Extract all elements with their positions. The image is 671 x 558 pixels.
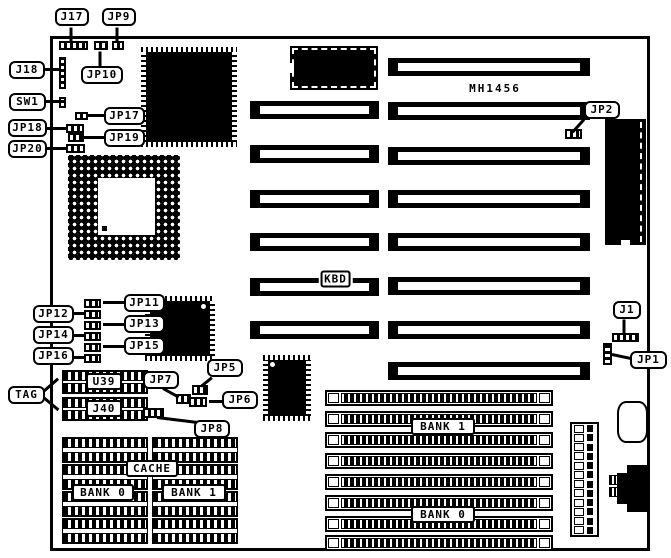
- isa-slot-long: [388, 58, 590, 76]
- callout-jp12: JP12: [33, 305, 74, 323]
- simm-slot: [325, 453, 553, 469]
- lead-j18: [45, 68, 59, 71]
- callout-jp6: JP6: [222, 391, 258, 409]
- callout-jp15: JP15: [124, 337, 165, 355]
- header-j18: [59, 57, 66, 89]
- lead-jp17: [87, 114, 104, 117]
- power-pin-socket: [574, 526, 584, 534]
- cpu-pga-cavity: [98, 178, 155, 235]
- header-j1: [612, 333, 639, 342]
- cache-bank0-label: BANK 0: [72, 484, 134, 501]
- power-pin: [572, 434, 597, 442]
- j40-label: J40: [86, 400, 122, 417]
- lead-sw1: [46, 100, 59, 103]
- switch-sw1: [59, 97, 66, 108]
- isa-slot-long: [388, 102, 590, 120]
- callout-jp18: JP18: [8, 119, 47, 137]
- bios-dashed-border: [292, 48, 376, 88]
- callout-jp16: JP16: [33, 347, 74, 365]
- power-pin-contact: [587, 490, 593, 497]
- callout-j18: J18: [9, 61, 45, 79]
- power-pin-socket: [574, 499, 584, 507]
- jumper-jp13: [84, 321, 101, 330]
- motherboard-diagram: MH1456: [0, 0, 671, 558]
- power-pin: [572, 517, 597, 525]
- jumper-jp11: [84, 299, 101, 308]
- power-pin-socket: [574, 517, 584, 525]
- isa-slot-short: [250, 101, 379, 119]
- power-pin-contact: [587, 434, 593, 441]
- lead-jp16: [74, 356, 84, 359]
- callout-jp1: JP1: [630, 351, 667, 369]
- lead-j17: [70, 28, 73, 43]
- cpu-qfp-body: [146, 52, 232, 142]
- kbd-dashed-line: [640, 122, 642, 242]
- simm-contacts: [341, 456, 537, 466]
- isa-slot-long: [388, 277, 590, 295]
- simm-contacts: [341, 435, 537, 445]
- cpu-qfp-chip: [141, 47, 237, 147]
- qfp-chip-small: [263, 355, 311, 421]
- bios-notch: [290, 63, 294, 73]
- isa-slot-short: [250, 321, 379, 339]
- power-pin-socket: [574, 508, 584, 516]
- lead-jp13: [103, 323, 124, 326]
- chipset-pin1-dot: [201, 304, 206, 309]
- power-pin-socket: [574, 443, 584, 451]
- header-j17: [59, 41, 88, 50]
- callout-j17: J17: [55, 8, 89, 26]
- jumper-jp20: [66, 144, 85, 153]
- isa-slot-long: [388, 321, 590, 339]
- power-pin-contact: [587, 518, 593, 525]
- power-pin: [572, 443, 597, 451]
- power-pin-contact: [587, 444, 593, 451]
- kbd-chip: [605, 119, 646, 245]
- callout-jp2: JP2: [584, 101, 620, 119]
- isa-slot-short: [250, 145, 379, 163]
- lead-jp9: [116, 28, 119, 43]
- lead-jp12: [74, 312, 84, 315]
- isa-slot-long: [388, 233, 590, 251]
- isa-slot-short: [250, 278, 379, 296]
- power-pin-socket: [574, 471, 584, 479]
- isa-slot-short: [250, 233, 379, 251]
- lead-jp11: [103, 301, 124, 304]
- lead-jp18: [46, 127, 66, 130]
- power-pin: [572, 526, 597, 534]
- simm-slot: [325, 535, 553, 551]
- power-pin-socket: [574, 452, 584, 460]
- power-pin: [572, 499, 597, 507]
- callout-jp17: JP17: [104, 107, 145, 125]
- u39-label: U39: [86, 373, 122, 390]
- power-pin-contact: [587, 481, 593, 488]
- callout-jp11: JP11: [124, 294, 165, 312]
- callout-jp5: JP5: [207, 359, 243, 377]
- power-pin: [572, 489, 597, 497]
- jumper-jp1: [603, 343, 612, 365]
- lead-jp20: [46, 147, 66, 150]
- cpu-pga-socket: [68, 155, 180, 260]
- lead-jp6: [209, 400, 222, 403]
- callout-jp8: JP8: [194, 420, 230, 438]
- power-pin-contact: [587, 499, 593, 506]
- kbd-label: KBD: [320, 271, 351, 288]
- bios-chip: [290, 46, 378, 90]
- power-pin-socket: [574, 462, 584, 470]
- cache-label: CACHE: [126, 460, 178, 477]
- jumper-jp19: [68, 133, 84, 142]
- power-pin-socket: [574, 489, 584, 497]
- jumper-jp5: [192, 385, 208, 395]
- isa-slot-long: [388, 147, 590, 165]
- lead-jp14: [74, 334, 84, 337]
- callout-jp19: JP19: [104, 129, 145, 147]
- din-pin-box-2: [609, 487, 618, 497]
- callout-tag: TAG: [8, 386, 45, 404]
- power-pin-contact: [587, 471, 593, 478]
- simm-contacts: [341, 477, 537, 487]
- power-pin-contact: [587, 508, 593, 515]
- power-pin: [572, 452, 597, 460]
- lead-jp15: [103, 345, 124, 348]
- simm-bank0-label: BANK 0: [411, 506, 475, 523]
- power-pin: [572, 462, 597, 470]
- qfp-small-body: [268, 360, 306, 416]
- simm-contacts: [341, 538, 537, 548]
- callout-jp14: JP14: [33, 326, 74, 344]
- cache-bank1-label: BANK 1: [162, 484, 226, 501]
- jumper-jp10: [94, 41, 108, 50]
- qfp-small-pin1-dot: [270, 362, 275, 367]
- pin1-marker-icon: [102, 226, 107, 231]
- power-pin: [572, 480, 597, 488]
- cache-chip: [62, 518, 148, 544]
- power-pin-contact: [587, 425, 593, 432]
- callout-sw1: SW1: [9, 93, 46, 111]
- callout-j1: J1: [613, 301, 641, 319]
- power-pin-contact: [587, 453, 593, 460]
- lead-j1: [623, 320, 626, 335]
- simm-slot: [325, 474, 553, 490]
- power-pin-socket: [574, 434, 584, 442]
- jumper-jp12: [84, 310, 101, 319]
- power-pin: [572, 425, 597, 433]
- isa-slot-long: [388, 190, 590, 208]
- callout-jp20: JP20: [8, 140, 47, 158]
- simm-bank1-label: BANK 1: [411, 418, 475, 435]
- jumper-jp6: [189, 397, 207, 407]
- jumper-jp15: [84, 343, 101, 352]
- jumper-jp14: [84, 332, 101, 341]
- power-pin: [572, 471, 597, 479]
- keyboard-din-lobe: [617, 473, 629, 504]
- power-connector: [570, 422, 599, 537]
- lead-jp19: [83, 136, 104, 139]
- part-number-text: MH1456: [455, 82, 535, 95]
- callout-jp10: JP10: [81, 66, 123, 84]
- simm-slot: [325, 390, 553, 406]
- keyboard-din-connector: [627, 465, 649, 512]
- din-pin-box-1: [609, 475, 618, 485]
- power-pin: [572, 508, 597, 516]
- isa-slot-long: [388, 362, 590, 380]
- jumper-jp16: [84, 354, 101, 363]
- power-pin-socket: [574, 480, 584, 488]
- kbd-notch: [621, 240, 630, 245]
- jumper-jp18: [66, 124, 84, 133]
- simm-contacts: [341, 393, 537, 403]
- power-pin-contact: [587, 527, 593, 534]
- power-pin-contact: [587, 462, 593, 469]
- callout-jp9: JP9: [102, 8, 136, 26]
- cache-chip: [152, 518, 238, 544]
- callout-jp7: JP7: [143, 371, 179, 389]
- battery: [617, 401, 648, 443]
- callout-jp13: JP13: [124, 315, 165, 333]
- power-pin-socket: [574, 425, 584, 433]
- isa-slot-short: [250, 190, 379, 208]
